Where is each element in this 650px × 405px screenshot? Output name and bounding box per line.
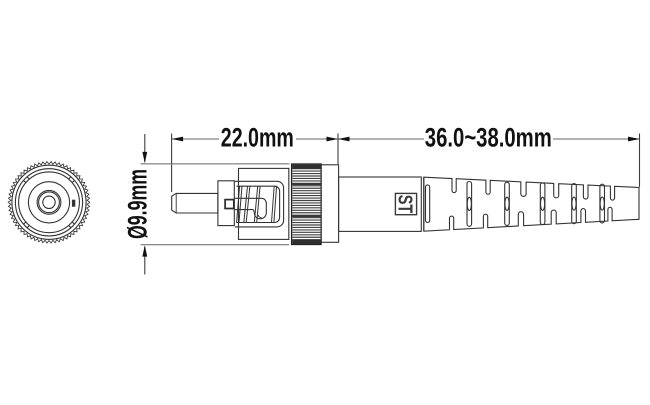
svg-text:36.0~38.0mm: 36.0~38.0mm: [425, 123, 552, 153]
svg-text:Ø9.9mm: Ø9.9mm: [123, 169, 153, 239]
svg-text:ST: ST: [394, 195, 416, 214]
svg-text:22.0mm: 22.0mm: [221, 123, 294, 153]
